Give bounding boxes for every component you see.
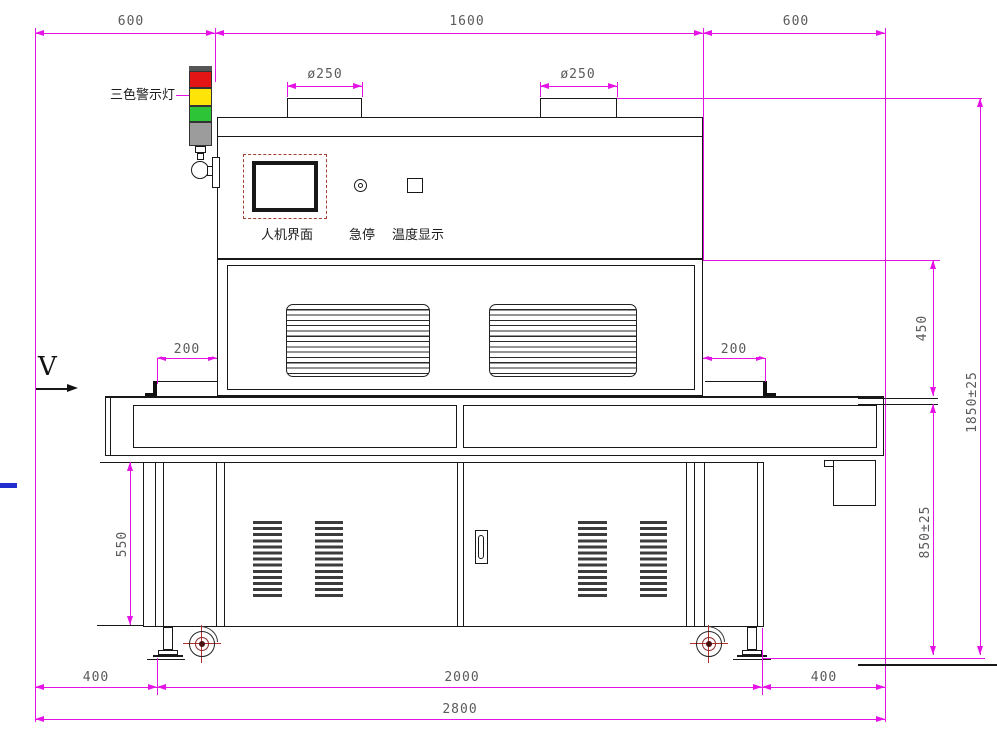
tick-line	[858, 404, 938, 405]
dimension-line-vent-right	[540, 86, 617, 87]
belt-direction-arrow-head	[67, 384, 78, 392]
extension-line	[215, 28, 216, 82]
base-frame-line	[694, 462, 695, 627]
tower-stem-lower	[197, 153, 204, 160]
conveyor-frame-panel-right	[463, 405, 877, 448]
base-frame-line	[704, 462, 705, 627]
tick-line	[97, 625, 143, 626]
arrowhead	[157, 684, 166, 690]
base-frame-line	[757, 462, 758, 627]
hmi-screen	[252, 161, 318, 212]
dimension-line-tunnel-height	[933, 260, 934, 396]
left-edge-artifact	[0, 483, 17, 488]
caster-left-hub	[199, 641, 205, 647]
tower-stem-upper	[195, 146, 206, 153]
belt-direction-label: V	[38, 352, 57, 382]
base-frame-line	[216, 462, 217, 627]
dim-tunnel-height-450: 450	[916, 306, 930, 350]
caster-right-hub	[706, 641, 712, 647]
warning-light-green-segment	[189, 106, 212, 122]
extension-line	[617, 82, 618, 97]
arrowhead	[215, 30, 224, 36]
arrowhead	[608, 83, 617, 89]
dim-overhang-left-200: 200	[162, 343, 212, 357]
dim-belt-height-850: 850±25	[919, 500, 933, 564]
base-frame-line	[686, 462, 687, 627]
dim-vent-left-diameter: ø250	[295, 68, 355, 82]
top-cap-separator-line	[218, 136, 702, 137]
dim-cabinet-height-550: 550	[116, 522, 130, 566]
dim-wheelbase-2000: 2000	[422, 671, 502, 685]
arrowhead	[930, 646, 936, 655]
engineering-drawing-canvas: 人机界面 急停 温度显示	[0, 0, 997, 745]
dim-top-left-600: 600	[101, 15, 161, 29]
belt-direction-arrow-shaft	[36, 388, 67, 390]
tick-line	[858, 398, 938, 399]
arrowhead	[977, 646, 983, 655]
belt-rail-right	[705, 381, 763, 382]
arrowhead	[930, 404, 936, 413]
arrowhead	[876, 716, 885, 722]
base-cabinet	[143, 462, 764, 627]
emergency-stop-button-inner	[358, 183, 363, 188]
base-frame-line	[224, 462, 225, 627]
door-divider-line	[457, 462, 458, 627]
arrowhead	[287, 83, 296, 89]
arrowhead	[876, 30, 885, 36]
extension-line	[703, 28, 704, 260]
dim-vent-right-diameter: ø250	[548, 68, 608, 82]
belt-stop-left-foot	[145, 393, 157, 396]
temperature-display-label: 温度显示	[386, 229, 450, 243]
extension-line	[765, 358, 766, 382]
conveyor-frame-panel-left	[133, 405, 457, 448]
leveling-foot-left-pad	[153, 655, 183, 657]
warning-light-red-segment	[189, 71, 212, 88]
dim-bottom-left-400: 400	[66, 671, 126, 685]
base-frame-line	[163, 462, 164, 627]
tunnel-louver-left	[286, 304, 430, 377]
reference-line-tunnel-top	[703, 260, 940, 261]
ground-line	[858, 664, 997, 666]
warning-light-base-segment	[189, 122, 212, 146]
dimension-line-cabinet-height	[130, 462, 131, 625]
extension-line	[362, 82, 363, 97]
extension-line	[885, 28, 886, 722]
hmi-label: 人机界面	[247, 229, 327, 243]
arrowhead	[35, 716, 44, 722]
door-vent-grille	[253, 521, 282, 600]
arrowhead	[206, 30, 215, 36]
warning-light-yellow-segment	[189, 88, 212, 106]
tunnel-louver-right	[489, 304, 637, 377]
door-vent-grille	[315, 521, 343, 600]
extension-line	[157, 358, 158, 384]
dimension-line-vent-left	[287, 86, 362, 87]
temperature-display-window	[407, 178, 423, 193]
reference-line-ground	[763, 658, 985, 659]
dimension-line-top	[35, 33, 885, 34]
emergency-stop-label: 急停	[338, 229, 386, 243]
door-divider-line	[463, 462, 464, 627]
dimension-line-belt-height	[933, 404, 934, 655]
conveyor-table-left-edge-line	[110, 397, 111, 455]
dim-overhang-right-200: 200	[709, 343, 759, 357]
conveyor-drive-bracket	[824, 460, 834, 467]
dim-total-height-1850: 1850±25	[966, 367, 980, 437]
leveling-foot-right-shaft	[747, 627, 757, 650]
arrowhead	[694, 30, 703, 36]
ground-tick-right	[733, 659, 771, 660]
dimension-line-total-width	[35, 719, 885, 720]
belt-stop-right-foot	[763, 393, 776, 396]
door-vent-grille	[640, 521, 667, 600]
extension-line	[35, 28, 36, 722]
arrowhead	[876, 684, 885, 690]
arrowhead	[703, 30, 712, 36]
door-vent-grille	[578, 521, 607, 600]
tower-wall-bracket	[212, 157, 220, 188]
arrowhead	[930, 260, 936, 269]
warning-light-leader-line	[176, 95, 189, 96]
belt-rail-left	[155, 381, 217, 382]
dim-total-width-2800: 2800	[420, 703, 500, 717]
warning-light-label: 三色警示灯	[93, 89, 175, 103]
dim-top-1600: 1600	[427, 15, 507, 29]
arrowhead	[977, 98, 983, 107]
base-frame-line	[155, 462, 156, 627]
arrowhead	[35, 684, 44, 690]
dim-top-right-600: 600	[766, 15, 826, 29]
arrowhead	[753, 684, 762, 690]
arrowhead	[148, 684, 157, 690]
tick-line	[100, 462, 143, 463]
arrowhead	[353, 83, 362, 89]
reference-line-total-height-top	[617, 98, 982, 99]
arrowhead	[762, 684, 771, 690]
arrowhead	[540, 83, 549, 89]
exhaust-vent-right	[540, 98, 617, 118]
arrowhead	[127, 462, 133, 471]
exhaust-vent-left	[287, 98, 362, 118]
conveyor-drive-box	[833, 460, 876, 506]
arrowhead	[127, 616, 133, 625]
door-handle-grip	[478, 535, 484, 559]
arrowhead	[930, 387, 936, 396]
dimension-line-total-height	[980, 98, 981, 655]
arrowhead	[35, 30, 44, 36]
ground-tick-left	[147, 659, 185, 660]
dim-bottom-right-400: 400	[794, 671, 854, 685]
leveling-foot-left-shaft	[163, 627, 173, 650]
